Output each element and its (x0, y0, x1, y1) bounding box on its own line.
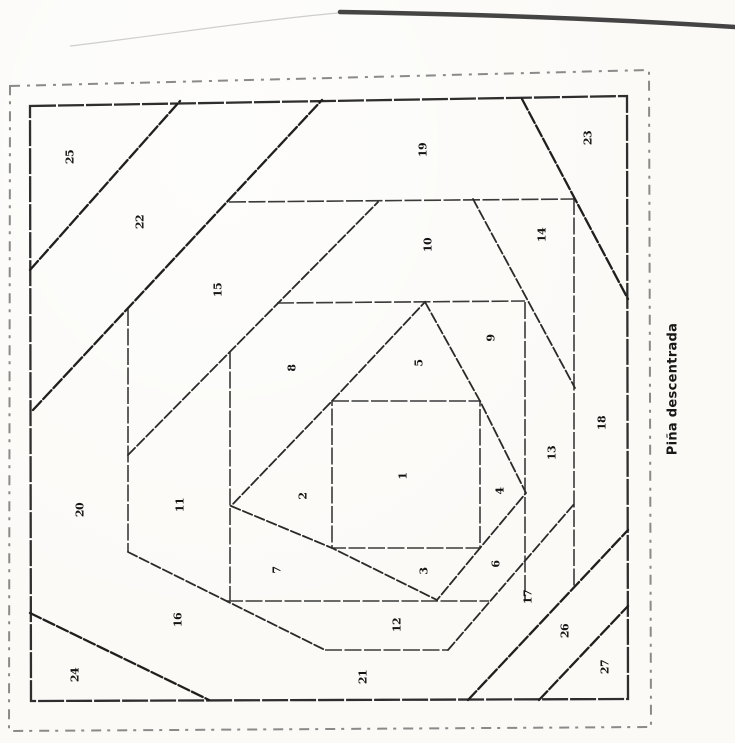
piece-label-6: 6 (490, 560, 503, 568)
piece-label-13: 13 (546, 446, 559, 460)
piece-label-20: 20 (74, 502, 87, 517)
scanned-pattern-page: 1234567891011121314151617181920212223242… (0, 0, 735, 743)
piece-label-16: 16 (172, 612, 185, 627)
piece-label-17: 17 (522, 590, 535, 604)
piece-label-5: 5 (413, 359, 426, 366)
piece-label-15: 15 (212, 283, 225, 297)
piece-label-19: 19 (417, 143, 430, 157)
piece-label-2: 2 (297, 492, 310, 499)
piece-label-1: 1 (397, 472, 410, 479)
piece-label-18: 18 (596, 415, 609, 430)
diagonal-seam-lines (30, 99, 628, 700)
piece-label-9: 9 (485, 334, 498, 341)
piece-label-24: 24 (69, 667, 82, 682)
piece-label-22: 22 (134, 215, 147, 229)
straight-seam-lines (128, 198, 574, 650)
piece-label-4: 4 (494, 487, 507, 495)
piece-label-11: 11 (174, 498, 187, 512)
scan-artifact-streak (70, 12, 735, 46)
piece-label-7: 7 (271, 566, 284, 573)
piece-label-8: 8 (286, 364, 299, 372)
piece-label-14: 14 (536, 227, 549, 242)
piece-label-21: 21 (357, 670, 370, 684)
piece-label-25: 25 (64, 150, 77, 164)
piece-label-3: 3 (418, 567, 431, 574)
piece-label-23: 23 (582, 131, 595, 145)
piece-label-26: 26 (559, 623, 572, 638)
piece-label-10: 10 (422, 237, 435, 252)
piece-label-27: 27 (599, 660, 612, 674)
pattern-title: Piña descentrada (666, 323, 681, 455)
dashed-seam-allowance-border (9, 70, 651, 731)
piece-label-12: 12 (391, 618, 404, 632)
block-outline (30, 96, 628, 701)
diamond-outline (231, 302, 526, 600)
pineapple-pattern-diagram: 1234567891011121314151617181920212223242… (0, 0, 735, 743)
